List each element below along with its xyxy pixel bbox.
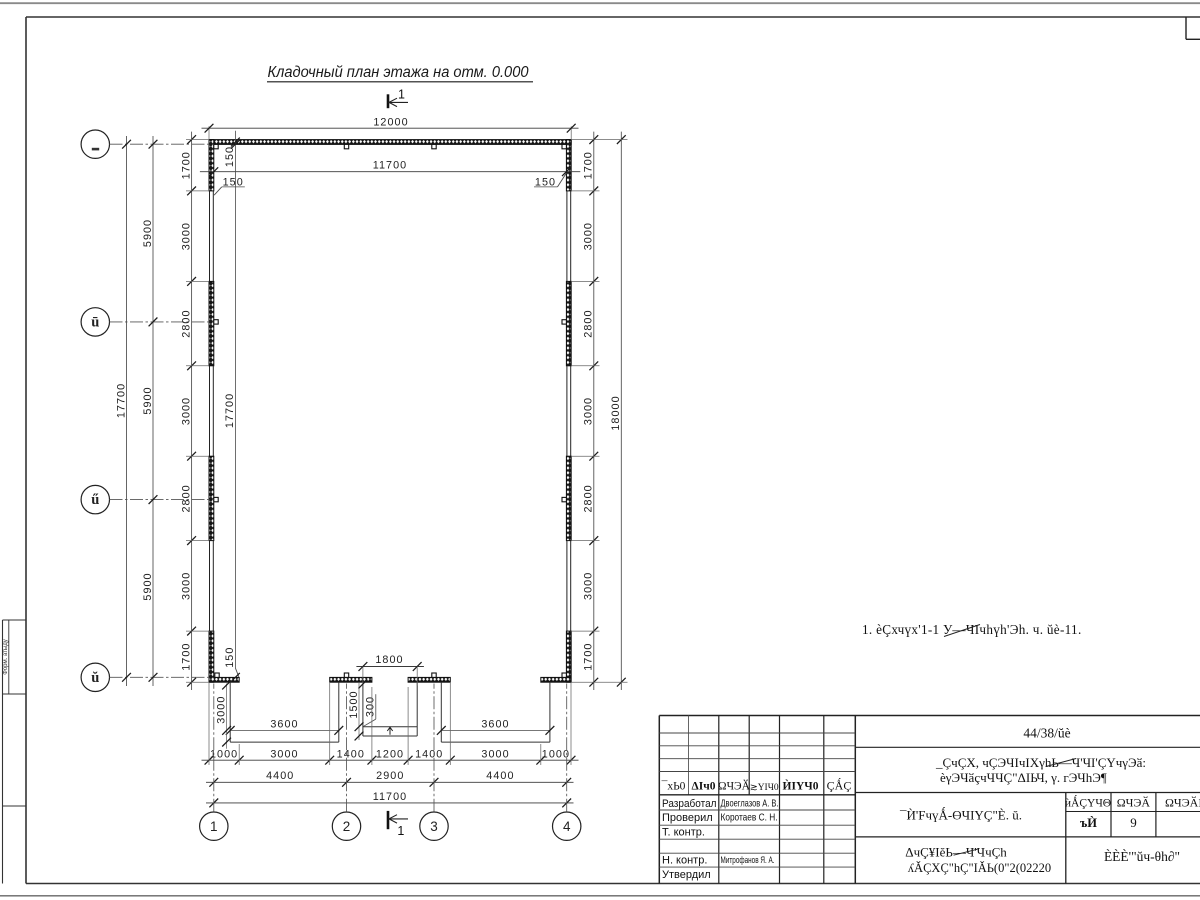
svg-text:17700: 17700: [224, 393, 236, 428]
svg-text:1: 1: [398, 87, 405, 101]
svg-text:ΩЧЭӐ: ΩЧЭӐ: [1117, 796, 1151, 810]
svg-text:9: 9: [1130, 815, 1137, 830]
svg-text:_ÇчÇХ, чÇЭЧΙчΙХγhЬ—Ч'ЧΙ'ÇΥчγЭӑ: _ÇчÇХ, чÇЭЧΙчΙХγhЬ—Ч'ЧΙ'ÇΥчγЭӑ:: [935, 755, 1146, 770]
svg-text:Двоеглазов А. В.: Двоеглазов А. В.: [721, 797, 779, 809]
svg-text:¯хЬ0: ¯хЬ0: [661, 779, 686, 792]
svg-text:ʎǍÇХÇ"hÇ"ΙǍЬ(0"2(02220: ʎǍÇХÇ"hÇ"ΙǍЬ(0"2(02220: [908, 861, 1051, 875]
svg-text:4400: 4400: [266, 770, 294, 782]
svg-text:3000: 3000: [180, 397, 192, 425]
svg-text:2800: 2800: [180, 484, 192, 512]
svg-text:1. ѐÇхчүх'1-1 У—ЧIчhүh'Эh. ч.: 1. ѐÇхчүх'1-1 У—ЧIчhүh'Эh. ч. ŭè-11.: [862, 622, 1082, 637]
svg-text:4400: 4400: [486, 770, 514, 782]
svg-text:18000: 18000: [610, 395, 622, 430]
svg-text:2: 2: [343, 819, 351, 834]
svg-text:2900: 2900: [376, 770, 404, 782]
svg-text:3600: 3600: [270, 718, 298, 730]
svg-text:Форм. атыду: Форм. атыду: [3, 639, 9, 674]
svg-text:3000: 3000: [215, 696, 227, 724]
svg-text:Н. контр.: Н. контр.: [662, 855, 707, 867]
svg-text:ъЍ: ъЍ: [1080, 816, 1097, 830]
svg-text:4: 4: [563, 819, 571, 834]
svg-text:Кладочный план этажа на отм. 0: Кладочный план этажа на отм. 0.000: [268, 64, 529, 81]
svg-text:ѐγЭЧӑçчЧЧÇ"ΔΙЬЧ, γ. гЭЧhЭ¶: ѐγЭЧӑçчЧЧÇ"ΔΙЬЧ, γ. гЭЧhЭ¶: [940, 770, 1107, 785]
svg-text:5900: 5900: [142, 219, 154, 247]
svg-text:2800: 2800: [583, 484, 595, 512]
svg-text:ű: ű: [91, 492, 99, 508]
svg-text:ū: ū: [91, 315, 99, 331]
svg-text:1700: 1700: [583, 151, 595, 179]
svg-text:150: 150: [224, 146, 236, 167]
svg-text:11700: 11700: [373, 160, 407, 172]
svg-text:12000: 12000: [373, 116, 408, 128]
svg-text:1400: 1400: [415, 748, 443, 760]
svg-text:ŭ: ŭ: [91, 670, 99, 686]
svg-text:3000: 3000: [583, 572, 595, 600]
svg-text:ΩЧЭӐ: ΩЧЭӐ: [718, 778, 751, 792]
svg-text:1400: 1400: [337, 748, 365, 760]
svg-text:ÇǺÇ: ÇǺÇ: [827, 776, 852, 792]
svg-text:11700: 11700: [373, 791, 407, 803]
svg-text:ΩЧЭӐΙΥ: ΩЧЭӐΙΥ: [1165, 796, 1200, 810]
svg-text:ЍΙΥЧ0: ЍΙΥЧ0: [783, 778, 819, 792]
svg-text:1700: 1700: [180, 643, 192, 671]
svg-text:ÈÈÈ'"ŭч-θh∂": ÈÈÈ'"ŭч-θh∂": [1104, 849, 1180, 864]
svg-text:17700: 17700: [115, 383, 127, 418]
svg-text:3000: 3000: [583, 397, 595, 425]
svg-text:1500: 1500: [348, 690, 360, 718]
svg-text:Коротаев С. Н.: Коротаев С. Н.: [721, 812, 778, 824]
svg-text:3000: 3000: [180, 222, 192, 250]
svg-text:2800: 2800: [180, 309, 192, 337]
svg-text:3600: 3600: [481, 718, 509, 730]
svg-text:3000: 3000: [270, 748, 298, 760]
svg-text:3000: 3000: [180, 572, 192, 600]
svg-text:1700: 1700: [180, 151, 192, 179]
svg-text:3: 3: [430, 819, 438, 834]
svg-text:300: 300: [365, 696, 377, 717]
svg-text:5900: 5900: [142, 386, 154, 414]
svg-text:1800: 1800: [375, 654, 403, 666]
svg-text:1200: 1200: [376, 748, 404, 760]
svg-text:44/38/ŭè: 44/38/ŭè: [1023, 726, 1070, 741]
svg-text:2800: 2800: [583, 309, 595, 337]
svg-text:3000: 3000: [481, 748, 509, 760]
svg-text:Утвердил: Утвердил: [662, 869, 711, 881]
svg-text:¯Ѝ'FчүǺ-ϴЧΙΥÇ"È. ŭ.: ¯Ѝ'FчүǺ-ϴЧΙΥÇ"È. ŭ.: [899, 806, 1022, 822]
svg-text:1: 1: [210, 819, 218, 834]
svg-text:3000: 3000: [583, 222, 595, 250]
svg-text:Разработал: Разработал: [662, 798, 717, 810]
svg-text:ΔчÇ¥ΙĕЬ—Ч'ЧчÇh: ΔчÇ¥ΙĕЬ—Ч'ЧчÇh: [905, 845, 1007, 860]
svg-text:Т. контр.: Т. контр.: [662, 826, 705, 838]
svg-text:5900: 5900: [142, 572, 154, 600]
svg-text:Проверил: Проверил: [662, 812, 713, 824]
svg-text:ΔΙч0: ΔΙч0: [692, 780, 716, 792]
svg-text:1000: 1000: [542, 748, 570, 760]
svg-text:≳ΥΙЧ0: ≳ΥΙЧ0: [750, 783, 779, 793]
svg-text:Митрофанов Я. А.: Митрофанов Я. А.: [721, 855, 775, 866]
svg-text:1700: 1700: [583, 643, 595, 671]
svg-text:150: 150: [224, 647, 236, 668]
svg-text:1: 1: [397, 824, 404, 838]
